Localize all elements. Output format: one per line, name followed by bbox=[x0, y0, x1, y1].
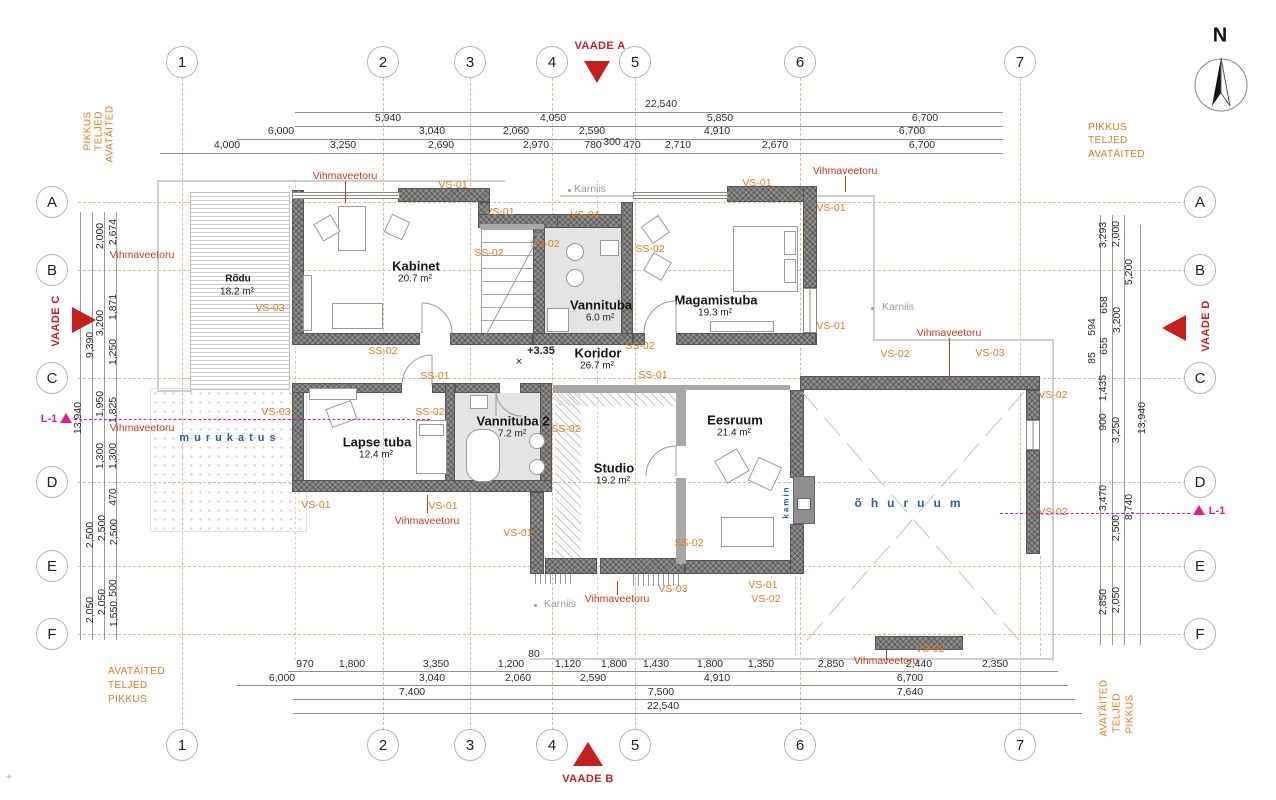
bathtub bbox=[466, 429, 500, 482]
dimension-label: 7,400 bbox=[399, 686, 425, 698]
grid-row-bubble: E bbox=[36, 550, 68, 582]
grid-row-bubble: D bbox=[1184, 466, 1216, 498]
dimension-label: 2,670 bbox=[762, 139, 788, 151]
room-name: Kabinet bbox=[392, 259, 440, 274]
wall-segment bbox=[1026, 450, 1040, 554]
grid-column-bubble: 2 bbox=[367, 46, 399, 78]
wall-segment bbox=[292, 480, 552, 492]
dimension-label: 2,060 bbox=[505, 672, 531, 684]
dimension-label: 900 bbox=[1097, 413, 1109, 431]
axis-caption: PIKKUS bbox=[1125, 694, 1136, 733]
view-triangle-icon bbox=[573, 742, 603, 766]
partition-wall bbox=[553, 385, 678, 393]
furniture bbox=[384, 214, 411, 241]
view-label: VAADE B bbox=[562, 773, 614, 785]
door-arc bbox=[644, 301, 676, 333]
dimension-label: 1,300 bbox=[107, 443, 119, 469]
furniture bbox=[721, 517, 774, 547]
void-cross-line bbox=[802, 392, 1024, 646]
room-area: 19.2 m² bbox=[596, 476, 630, 487]
annotation-label: VS-02 bbox=[751, 593, 780, 605]
dimension-label: 80 bbox=[528, 648, 540, 660]
dimension-label: 3,250 bbox=[1110, 417, 1122, 443]
blue-plan-text: õhuruum bbox=[855, 496, 970, 510]
dimension-line bbox=[160, 153, 1003, 154]
dimension-label: 2,000 bbox=[1110, 221, 1122, 247]
annotation-label: SS-02 bbox=[625, 340, 654, 352]
axis-caption: AVATÄITED bbox=[1088, 149, 1145, 160]
annotation-label: VS-04 bbox=[570, 209, 599, 221]
wall-segment bbox=[800, 376, 1040, 390]
view-triangle-icon bbox=[1162, 315, 1186, 341]
void-cross-line bbox=[802, 392, 1024, 646]
dimension-label: 3,040 bbox=[419, 125, 445, 137]
axis-caption: AVATÄITED bbox=[1099, 680, 1110, 737]
annotation-label: SS-02 bbox=[551, 423, 580, 435]
view-label: VAADE D bbox=[1200, 300, 1212, 352]
annotation-label: VS-02 bbox=[1038, 506, 1067, 518]
room-name: Lapse tuba bbox=[343, 435, 412, 450]
grid-row-bubble: E bbox=[1184, 550, 1216, 582]
annotation-label: Karniis bbox=[882, 301, 914, 313]
annotation-label: VS-01 bbox=[485, 206, 514, 218]
dimension-label: 2,500 bbox=[84, 522, 96, 548]
north-arrow bbox=[1195, 59, 1247, 111]
door-arc bbox=[422, 303, 452, 333]
dimension-line bbox=[293, 699, 1075, 700]
grid-row-bubble: C bbox=[1184, 362, 1216, 394]
annotation-leader bbox=[345, 181, 346, 203]
dimension-label: 4,910 bbox=[704, 125, 730, 137]
sink bbox=[529, 433, 545, 449]
dimension-label: 1,800 bbox=[697, 658, 723, 670]
annotation-label: SS-02 bbox=[368, 345, 397, 357]
room-name: Vannituba bbox=[570, 298, 632, 313]
blue-plan-text: murukatus bbox=[179, 432, 280, 444]
wall-segment bbox=[292, 333, 420, 345]
annotation-label: Vihmaveetoru bbox=[585, 593, 650, 605]
annotation-label: VS-01 bbox=[742, 177, 771, 189]
dimension-label: 7,640 bbox=[897, 686, 923, 698]
dimension-label: 2,970 bbox=[523, 139, 549, 151]
view-triangle-icon bbox=[72, 307, 96, 333]
axis-line bbox=[78, 634, 1186, 635]
wall-segment bbox=[621, 202, 633, 345]
level-triangle-icon bbox=[1193, 505, 1205, 515]
grid-column-bubble: 5 bbox=[619, 729, 651, 761]
dimension-label: 1,800 bbox=[601, 658, 627, 670]
annotation-label: VS-03 bbox=[975, 347, 1004, 359]
dimension-label: 6,000 bbox=[268, 125, 294, 137]
grid-column-bubble: 4 bbox=[536, 46, 568, 78]
view-triangle-icon bbox=[584, 61, 610, 83]
furniture bbox=[600, 240, 619, 256]
dimension-label: 2,350 bbox=[982, 658, 1008, 670]
grid-column-bubble: 1 bbox=[166, 729, 198, 761]
annotation-label: VS-01 bbox=[301, 499, 330, 511]
window bbox=[633, 192, 728, 199]
window bbox=[803, 288, 817, 333]
grid-column-bubble: 6 bbox=[784, 729, 816, 761]
dimension-label: 1,950 bbox=[94, 391, 106, 417]
fireplace-opening bbox=[797, 498, 811, 510]
furniture bbox=[309, 388, 357, 400]
sink bbox=[529, 459, 545, 475]
room-area: 18.2 m² bbox=[220, 287, 254, 298]
dimension-label: 3,293 bbox=[1097, 222, 1109, 248]
grid-column-bubble: 4 bbox=[536, 729, 568, 761]
annotation-leader bbox=[845, 176, 846, 192]
annotation-label: Vihmaveetoru bbox=[110, 422, 175, 434]
dimension-label: 5,200 bbox=[1123, 259, 1135, 285]
wall-segment bbox=[533, 333, 633, 345]
furniture bbox=[710, 321, 774, 332]
north-needle-dark bbox=[1212, 58, 1221, 106]
room-name: Eesruum bbox=[707, 413, 763, 428]
room-name: Koridor bbox=[575, 346, 622, 361]
annotation-label: VS-01 bbox=[748, 579, 777, 591]
grid-column-bubble: 6 bbox=[784, 46, 816, 78]
room-name: Vannituba 2 bbox=[477, 414, 550, 429]
dimension-label: 2,710 bbox=[665, 139, 691, 151]
level-triangle-icon bbox=[60, 413, 72, 423]
dimension-line bbox=[293, 713, 1082, 714]
annotation-label: VS-01 bbox=[816, 202, 845, 214]
axis-caption: AVATÄITED bbox=[105, 106, 116, 163]
annotation-label: VS-02 bbox=[1038, 389, 1067, 401]
cornice-dot bbox=[534, 604, 537, 607]
annotation-label: SS-02 bbox=[474, 247, 503, 259]
dimension-label: 1,871 bbox=[107, 294, 119, 320]
dimension-label: 2,050 bbox=[96, 589, 108, 615]
annotation-label: SS-02 bbox=[674, 537, 703, 549]
axis-line bbox=[1020, 78, 1021, 730]
dimension-label: 655 bbox=[1098, 337, 1110, 355]
room-area: 7.2 m² bbox=[498, 429, 526, 440]
grid-column-bubble: 1 bbox=[166, 46, 198, 78]
dimension-label: 2,500 bbox=[1110, 515, 1122, 541]
furniture bbox=[303, 275, 312, 331]
room-name: Rõdu bbox=[225, 274, 251, 285]
dimension-label: 658 bbox=[1098, 296, 1110, 314]
annotation-label: SS-02 bbox=[635, 243, 664, 255]
furniture bbox=[784, 259, 796, 283]
level-mark-symbol: ✕ bbox=[515, 357, 523, 368]
annotation-label: Karniis bbox=[544, 598, 576, 610]
axis-caption: PIKKUS bbox=[108, 694, 147, 705]
dimension-label: 2,060 bbox=[503, 125, 529, 137]
annotation-label: Vihmaveetoru bbox=[313, 170, 378, 182]
dimension-label: 470 bbox=[623, 139, 641, 151]
dimension-label: 2,850 bbox=[818, 658, 844, 670]
partition-wall bbox=[676, 478, 686, 564]
furniture bbox=[338, 206, 366, 251]
annotation-label: VS-03 bbox=[658, 583, 687, 595]
dimension-label: 470 bbox=[107, 488, 119, 506]
axis-caption: AVATÄITED bbox=[108, 666, 165, 677]
dimension-label: 9,390 bbox=[84, 332, 96, 358]
axis-caption: TELJED bbox=[1088, 135, 1128, 146]
room-area: 26.7 m² bbox=[580, 361, 614, 372]
dimension-label: 2,500 bbox=[108, 519, 120, 545]
dimension-label: 5,850 bbox=[707, 112, 733, 124]
dimension-label: 1,430 bbox=[643, 658, 669, 670]
level-label: L-1 bbox=[41, 413, 58, 425]
dimension-label: 3,470 bbox=[1097, 485, 1109, 511]
furniture bbox=[641, 215, 670, 244]
wall-segment bbox=[790, 390, 804, 478]
grid-row-bubble: A bbox=[36, 186, 68, 218]
window bbox=[292, 192, 400, 199]
furniture bbox=[784, 231, 796, 255]
dimension-label: 22,540 bbox=[645, 98, 677, 110]
grid-row-bubble: A bbox=[1184, 186, 1216, 218]
furniture bbox=[313, 214, 340, 241]
cornice-dot bbox=[871, 307, 874, 310]
annotation-label: VS-03 bbox=[255, 302, 284, 314]
furniture bbox=[748, 457, 783, 492]
dimension-label: 594 bbox=[1086, 318, 1098, 336]
dimension-label: 3,250 bbox=[330, 139, 356, 151]
dimension-line bbox=[1140, 225, 1141, 645]
dimension-label: 6,700 bbox=[899, 125, 925, 137]
dimension-label: 2,674 bbox=[107, 219, 119, 245]
grid-row-bubble: B bbox=[1184, 254, 1216, 286]
roof-outline-dashed bbox=[1040, 556, 1041, 656]
dimension-label: 2,590 bbox=[580, 672, 606, 684]
wall-segment bbox=[450, 333, 533, 345]
dimension-label: 22,540 bbox=[647, 700, 679, 712]
furniture bbox=[470, 395, 488, 409]
grid-row-bubble: F bbox=[36, 618, 68, 650]
dimension-line bbox=[104, 212, 105, 640]
roof-outline bbox=[157, 180, 159, 392]
door-arc bbox=[646, 446, 676, 476]
room-area: 20.7 m² bbox=[398, 274, 432, 285]
grid-row-bubble: D bbox=[36, 466, 68, 498]
annotation-label: VS-01 bbox=[428, 500, 457, 512]
axis-caption: TELJED bbox=[108, 680, 148, 691]
dimension-label: 3,200 bbox=[1111, 307, 1123, 333]
north-needle-light bbox=[1221, 58, 1230, 106]
dimension-label: 4,910 bbox=[704, 672, 730, 684]
level-mark: +3.35 bbox=[527, 345, 555, 357]
dimension-label: 1,300 bbox=[94, 443, 106, 469]
annotation-label: Vihmaveetoru bbox=[917, 327, 982, 339]
grid-column-bubble: 7 bbox=[1004, 729, 1036, 761]
dimension-label: 1,200 bbox=[498, 658, 524, 670]
north-label: N bbox=[1213, 25, 1227, 48]
annotation-label: VS-01 bbox=[816, 320, 845, 332]
cornice-dot bbox=[568, 189, 571, 192]
view-label: VAADE C bbox=[50, 295, 62, 347]
dimension-label: 7,500 bbox=[648, 686, 674, 698]
wall-segment bbox=[292, 383, 304, 492]
dimension-label: 1,250 bbox=[107, 339, 119, 365]
level-label: L-1 bbox=[1209, 505, 1226, 517]
corner-mark: + bbox=[6, 772, 12, 783]
blue-plan-text: kamin bbox=[782, 485, 791, 518]
wall-segment bbox=[600, 558, 685, 574]
dimension-label: 13,940 bbox=[72, 402, 84, 434]
dimension-label: 3,350 bbox=[423, 658, 449, 670]
room-area: 6.0 m² bbox=[586, 313, 614, 324]
room-name: Studio bbox=[594, 461, 634, 476]
annotation-label: SS-02 bbox=[415, 406, 444, 418]
room-area: 21.4 m² bbox=[717, 428, 751, 439]
dimension-label: 3,040 bbox=[419, 672, 445, 684]
dimension-label: 85 bbox=[1086, 352, 1098, 364]
annotation-label: Vihmaveetoru bbox=[395, 515, 460, 527]
axis-caption: PIKKUS bbox=[83, 111, 94, 150]
dimension-line bbox=[295, 112, 1003, 113]
dimension-line bbox=[295, 126, 1003, 127]
annotation-label: VS-03 bbox=[261, 406, 290, 418]
dimension-label: 1,120 bbox=[555, 658, 581, 670]
partition-wall bbox=[480, 224, 544, 229]
axis-caption: TELJED bbox=[1112, 693, 1123, 733]
partition-wall bbox=[676, 385, 790, 390]
roof-outline bbox=[1052, 339, 1054, 661]
annotation-label: VS-02 bbox=[880, 348, 909, 360]
sink bbox=[566, 269, 584, 287]
roof-outline bbox=[873, 339, 1053, 341]
dimension-label: 2,850 bbox=[1097, 589, 1109, 615]
roof-outline bbox=[873, 195, 875, 340]
dimension-label: 1,800 bbox=[339, 658, 365, 670]
dimension-label: 2,050 bbox=[1110, 587, 1122, 613]
dimension-line bbox=[288, 671, 1058, 672]
furniture bbox=[332, 303, 383, 329]
dimension-label: 780 bbox=[584, 139, 602, 151]
annotation-label: SS-01 bbox=[420, 370, 449, 382]
dimension-label: 4,050 bbox=[540, 112, 566, 124]
dimension-label: 500 bbox=[107, 579, 119, 597]
floor-plan-canvas: 22,5405,9404,0505,8506,7006,0003,0402,06… bbox=[0, 0, 1276, 800]
annotation-label: Vihmaveetoru bbox=[110, 249, 175, 261]
wall-segment bbox=[803, 186, 817, 288]
grid-row-bubble: F bbox=[1184, 618, 1216, 650]
axis-line bbox=[383, 78, 384, 730]
grid-column-bubble: 3 bbox=[454, 46, 486, 78]
furniture bbox=[714, 448, 750, 484]
view-label: VAADE A bbox=[574, 40, 625, 52]
annotation-label: VS-01 bbox=[503, 527, 532, 539]
furniture bbox=[643, 252, 672, 281]
dimension-label: 13,940 bbox=[1136, 402, 1148, 434]
level-line bbox=[1000, 513, 1190, 514]
annotation-leader bbox=[949, 338, 950, 376]
dimension-label: 2,050 bbox=[84, 597, 96, 623]
annotation-label: SS-02 bbox=[530, 238, 559, 250]
dimension-label: 2,690 bbox=[428, 139, 454, 151]
dimension-label: 6,000 bbox=[269, 672, 295, 684]
wall-segment bbox=[676, 333, 816, 345]
furniture bbox=[419, 424, 444, 436]
sink bbox=[566, 243, 584, 261]
dimension-label: 970 bbox=[296, 658, 314, 670]
dimension-label: 2,000 bbox=[94, 223, 106, 249]
hatch-band bbox=[555, 393, 581, 558]
wall-segment bbox=[790, 524, 804, 574]
wall-segment bbox=[455, 383, 500, 393]
dimension-label: 2,500 bbox=[96, 515, 108, 541]
dimension-label: 2,590 bbox=[579, 125, 605, 137]
dimension-label: 8,740 bbox=[1123, 494, 1135, 520]
dimension-label: 6,700 bbox=[909, 139, 935, 151]
dimension-label: 300 bbox=[603, 136, 621, 148]
annotation-label: Vihmaveetoru bbox=[813, 165, 878, 177]
partition-wall bbox=[676, 388, 686, 446]
grid-column-bubble: 2 bbox=[367, 729, 399, 761]
room-area: 19.3 m² bbox=[698, 308, 732, 319]
grid-column-bubble: 3 bbox=[454, 729, 486, 761]
annotation-label: VS-01 bbox=[438, 179, 467, 191]
room-name: Magamistuba bbox=[674, 293, 757, 308]
furniture bbox=[547, 308, 569, 332]
grid-column-bubble: 7 bbox=[1004, 46, 1036, 78]
grid-row-bubble: C bbox=[36, 362, 68, 394]
dimension-label: 6,700 bbox=[912, 112, 938, 124]
wall-segment bbox=[545, 558, 597, 574]
annotation-label: Karniis bbox=[574, 183, 606, 195]
annotation-label: SS-01 bbox=[638, 369, 667, 381]
level-line bbox=[74, 419, 430, 420]
window bbox=[1026, 420, 1040, 450]
axis-caption: TELJED bbox=[94, 111, 105, 151]
dimension-label: 4,000 bbox=[214, 139, 240, 151]
axis-caption: PIKKUS bbox=[1088, 122, 1127, 133]
annotation-label: Vihmaveetoru bbox=[854, 655, 919, 667]
grid-row-bubble: B bbox=[36, 254, 68, 286]
dimension-label: 6,700 bbox=[897, 672, 923, 684]
wall-segment bbox=[685, 560, 797, 574]
room-area: 12.4 m² bbox=[359, 450, 393, 461]
annotation-label: VS-02 bbox=[915, 643, 944, 655]
dimension-label: 1,435 bbox=[1097, 375, 1109, 401]
furniture bbox=[325, 400, 357, 428]
dimension-label: 1,350 bbox=[748, 658, 774, 670]
dimension-label: 5,940 bbox=[375, 112, 401, 124]
dimension-label: 1,550 bbox=[108, 601, 120, 627]
dimension-line bbox=[92, 212, 93, 640]
